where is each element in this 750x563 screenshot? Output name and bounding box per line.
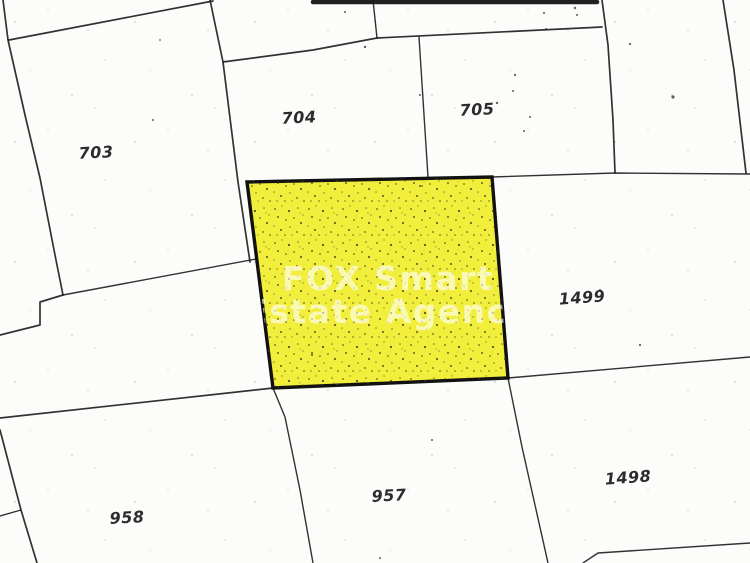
- highlighted-parcel: FOX Smart Estate Agency: [240, 170, 531, 395]
- parcel-label-704: 704: [281, 107, 317, 128]
- watermark: FOX Smart Estate Agency: [245, 259, 530, 331]
- cadastral-map: FOX Smart Estate Agency 703 704 705 1499…: [0, 0, 750, 563]
- cadastral-map-canvas: FOX Smart Estate Agency 703 704 705 1499…: [0, 0, 750, 563]
- parcel-label-957: 957: [371, 485, 407, 506]
- watermark-line2: Estate Agency: [245, 292, 530, 331]
- parcel-label-705: 705: [459, 99, 495, 120]
- parcel-label-703: 703: [78, 142, 114, 163]
- parcel-label-1499: 1499: [558, 286, 606, 308]
- parcel-label-958: 958: [109, 507, 145, 528]
- parcel-label-1498: 1498: [604, 466, 652, 488]
